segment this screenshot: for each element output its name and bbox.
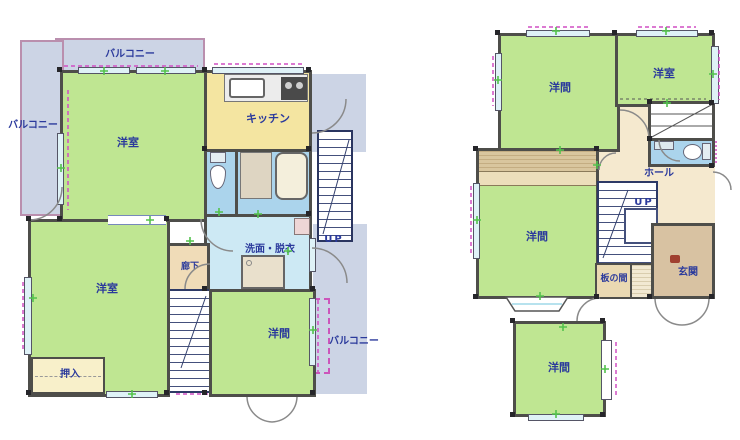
room-sw-label: 洋室 (83, 283, 131, 295)
floor-plan-left: バルコニー バルコニー 洋室 キッチン 洗面・脱衣 廊下 洋室 押入 洋間 バル… (0, 0, 380, 440)
entrance-mark (670, 255, 680, 263)
floor-plan-canvas: バルコニー バルコニー 洋室 キッチン 洗面・脱衣 廊下 洋室 押入 洋間 バル… (0, 0, 740, 440)
toilet-tank (702, 143, 711, 160)
closet-rne (648, 101, 715, 141)
window (24, 277, 32, 355)
balcony-right-label: バルコニー (320, 336, 388, 347)
washroom-label: 洗面・脱衣 (229, 244, 311, 255)
sliding-opening (108, 215, 166, 225)
stairs-internal (166, 289, 212, 393)
window (636, 30, 698, 37)
washing-machine (241, 255, 285, 289)
stove (281, 77, 307, 100)
window (528, 414, 584, 421)
corridor-label: 廊下 (176, 263, 204, 273)
window (473, 183, 480, 259)
entrance-label: 玄関 (666, 267, 710, 278)
room-western-se (209, 289, 316, 397)
balcony-top-label: バルコニー (93, 49, 167, 60)
room-rnw-label: 洋間 (536, 82, 584, 94)
closet-strip-upper (479, 151, 596, 172)
stairs-up-left-label: UP (317, 234, 351, 245)
oshiire-label: 押入 (50, 369, 90, 380)
room-rne-label: 洋室 (640, 68, 688, 80)
itanoma-label: 板の間 (595, 275, 633, 285)
shower-area (240, 152, 272, 199)
window (136, 67, 196, 74)
window (78, 67, 130, 74)
washroom-sink (294, 218, 310, 235)
window (309, 298, 316, 366)
balcony-left-label: バルコニー (1, 120, 65, 131)
room-rs-label: 洋間 (535, 362, 583, 374)
stairs-external (317, 130, 353, 242)
hall-label: ホール (634, 168, 684, 179)
toilet-bowl (683, 144, 702, 160)
window (711, 46, 719, 104)
kitchen-sink (229, 78, 265, 98)
closet-strip-lower (479, 172, 596, 186)
floor-plan-right: 洋間 洋室 ホール UP 洋間 板の間 玄関 洋間 (380, 0, 740, 440)
toilet-tank (210, 152, 226, 163)
window (212, 67, 304, 74)
bathtub (275, 152, 308, 200)
entrance-room (651, 223, 715, 299)
window (526, 30, 590, 37)
room-rw-label: 洋間 (513, 231, 561, 243)
kitchen-label: キッチン (237, 113, 299, 125)
stairs-up-right-label: UP (627, 197, 661, 208)
room-nw-label: 洋室 (104, 137, 152, 149)
window (57, 133, 64, 205)
room-se-label: 洋間 (255, 328, 303, 340)
window (106, 391, 158, 398)
window (495, 53, 502, 111)
window-bay-side (601, 340, 612, 400)
toilet-sink (654, 141, 674, 150)
